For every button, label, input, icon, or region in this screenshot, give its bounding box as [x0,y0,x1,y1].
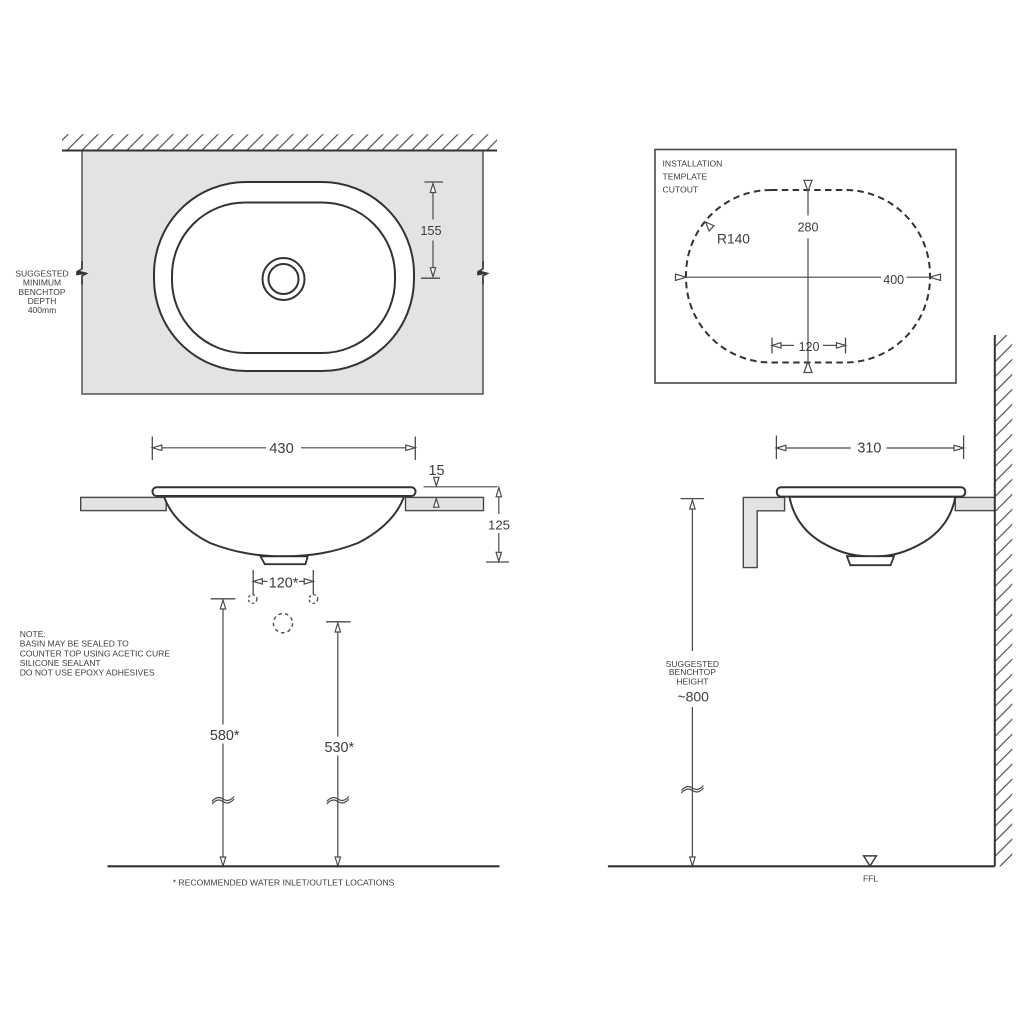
svg-text:COUNTER TOP USING ACETIC CURE: COUNTER TOP USING ACETIC CURE [20,648,171,658]
svg-text:CUTOUT: CUTOUT [663,185,699,195]
svg-text:DO NOT USE EPOXY ADHESIVES: DO NOT USE EPOXY ADHESIVES [20,668,155,678]
svg-text:* RECOMMENDED WATER INLET/OUTL: * RECOMMENDED WATER INLET/OUTLET LOCATIO… [173,877,395,887]
svg-text:BASIN MAY BE SEALED TO: BASIN MAY BE SEALED TO [20,639,129,649]
svg-text:R140: R140 [717,232,750,247]
svg-text:HEIGHT: HEIGHT [676,676,708,686]
svg-text:120: 120 [799,340,820,354]
svg-text:310: 310 [857,440,881,456]
svg-text:125: 125 [488,518,510,533]
svg-text:400mm: 400mm [28,305,56,315]
svg-text:155: 155 [420,223,441,238]
svg-text:580*: 580* [210,728,240,744]
svg-text:530*: 530* [324,740,354,756]
svg-text:NOTE:: NOTE: [20,629,46,639]
svg-text:TEMPLATE: TEMPLATE [663,172,708,182]
svg-text:FFL: FFL [863,874,878,884]
svg-text:280: 280 [798,221,819,235]
svg-text:15: 15 [428,463,444,479]
svg-text:430: 430 [269,441,294,457]
svg-text:400: 400 [883,273,904,287]
svg-text:120*: 120* [269,576,299,592]
svg-text:~800: ~800 [677,689,709,705]
svg-text:INSTALLATION: INSTALLATION [663,158,723,168]
